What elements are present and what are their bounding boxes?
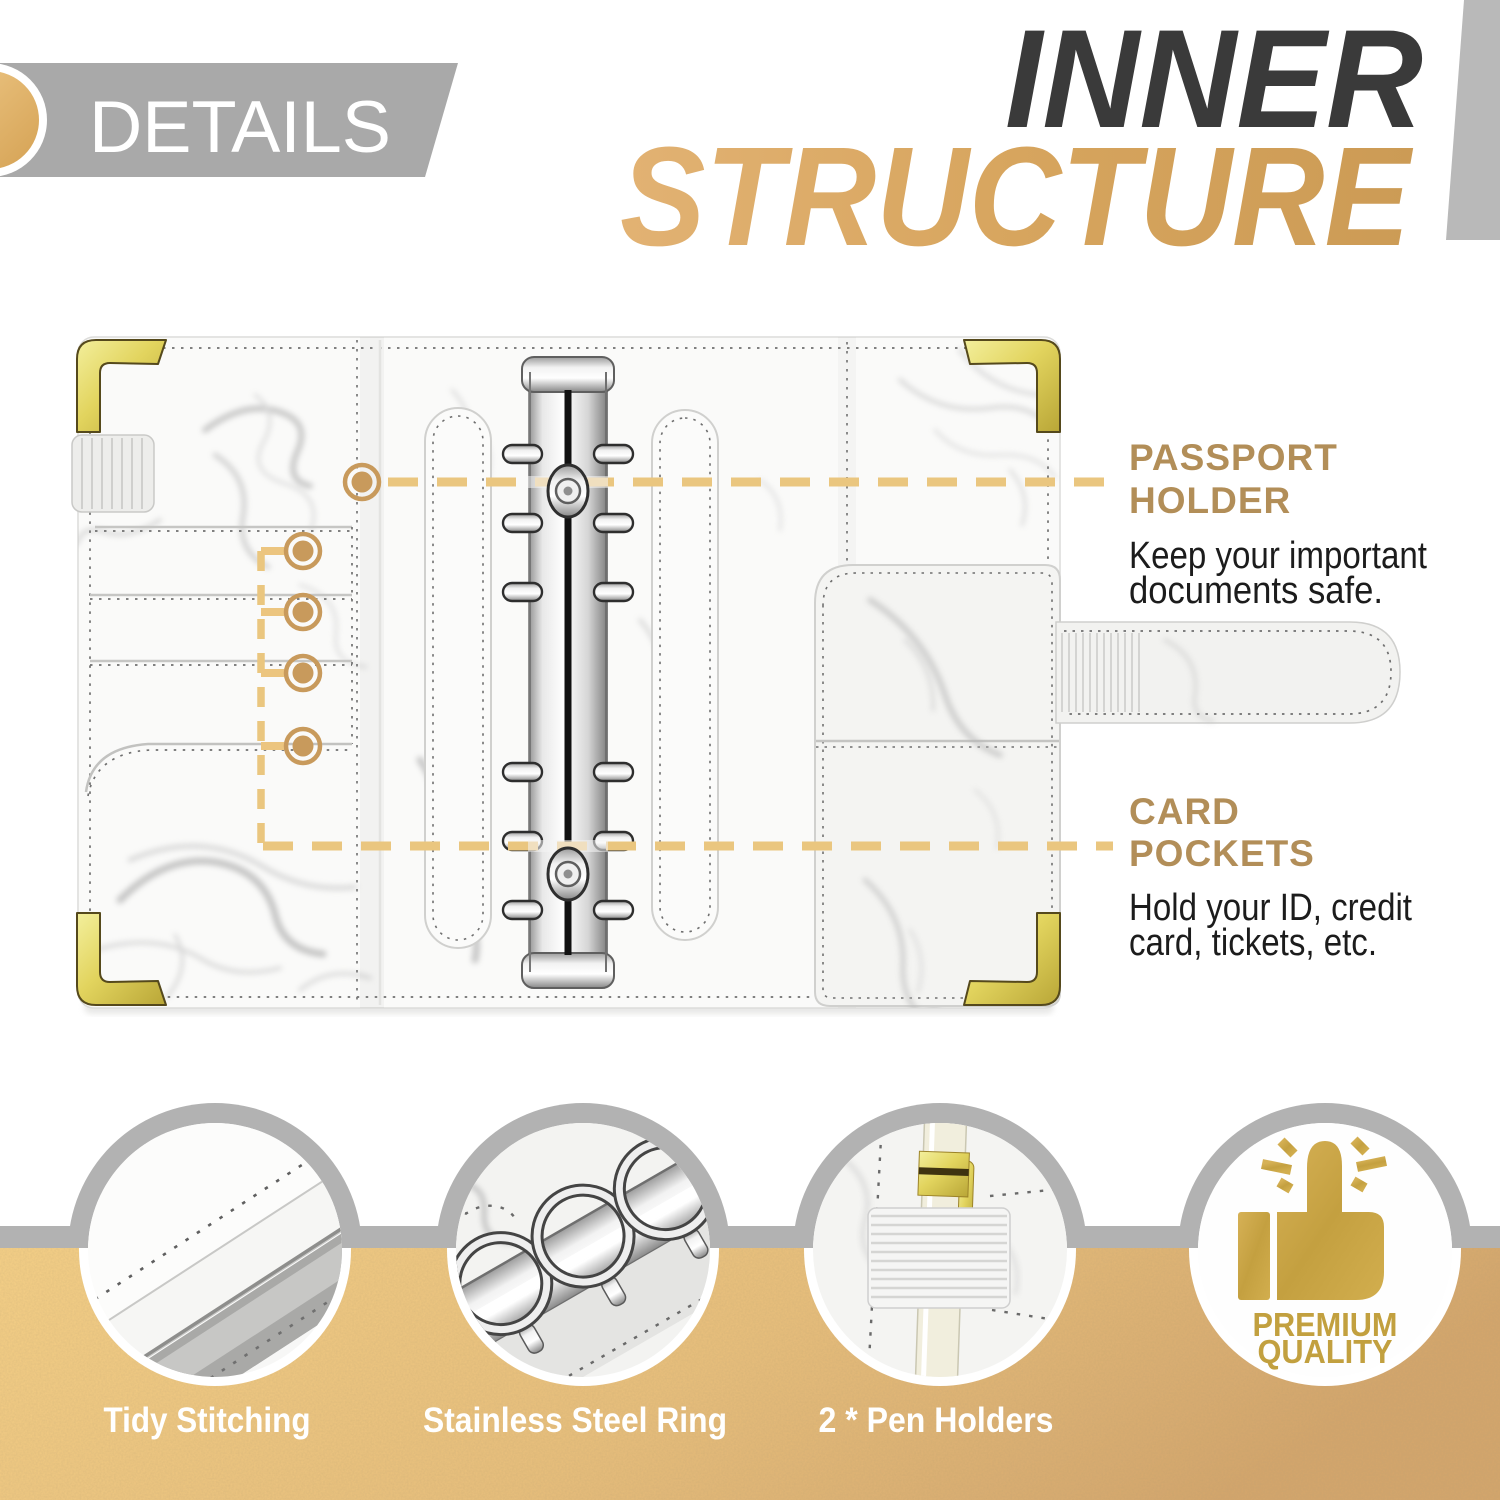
svg-text:documents safe.: documents safe. bbox=[1129, 570, 1383, 612]
svg-text:2 * Pen Holders: 2 * Pen Holders bbox=[819, 1401, 1054, 1440]
svg-text:DETAILS: DETAILS bbox=[89, 87, 391, 168]
svg-text:card, tickets, etc.: card, tickets, etc. bbox=[1129, 922, 1377, 964]
svg-text:CARD: CARD bbox=[1129, 791, 1240, 832]
svg-text:POCKETS: POCKETS bbox=[1129, 833, 1315, 874]
svg-text:Stainless Steel Ring: Stainless Steel Ring bbox=[423, 1401, 727, 1440]
svg-text:HOLDER: HOLDER bbox=[1129, 480, 1291, 521]
svg-text:STRUCTURE: STRUCTURE bbox=[620, 117, 1414, 275]
svg-text:Tidy Stitching: Tidy Stitching bbox=[104, 1401, 311, 1440]
svg-text:QUALITY: QUALITY bbox=[1258, 1333, 1393, 1370]
svg-text:PASSPORT: PASSPORT bbox=[1129, 437, 1338, 478]
